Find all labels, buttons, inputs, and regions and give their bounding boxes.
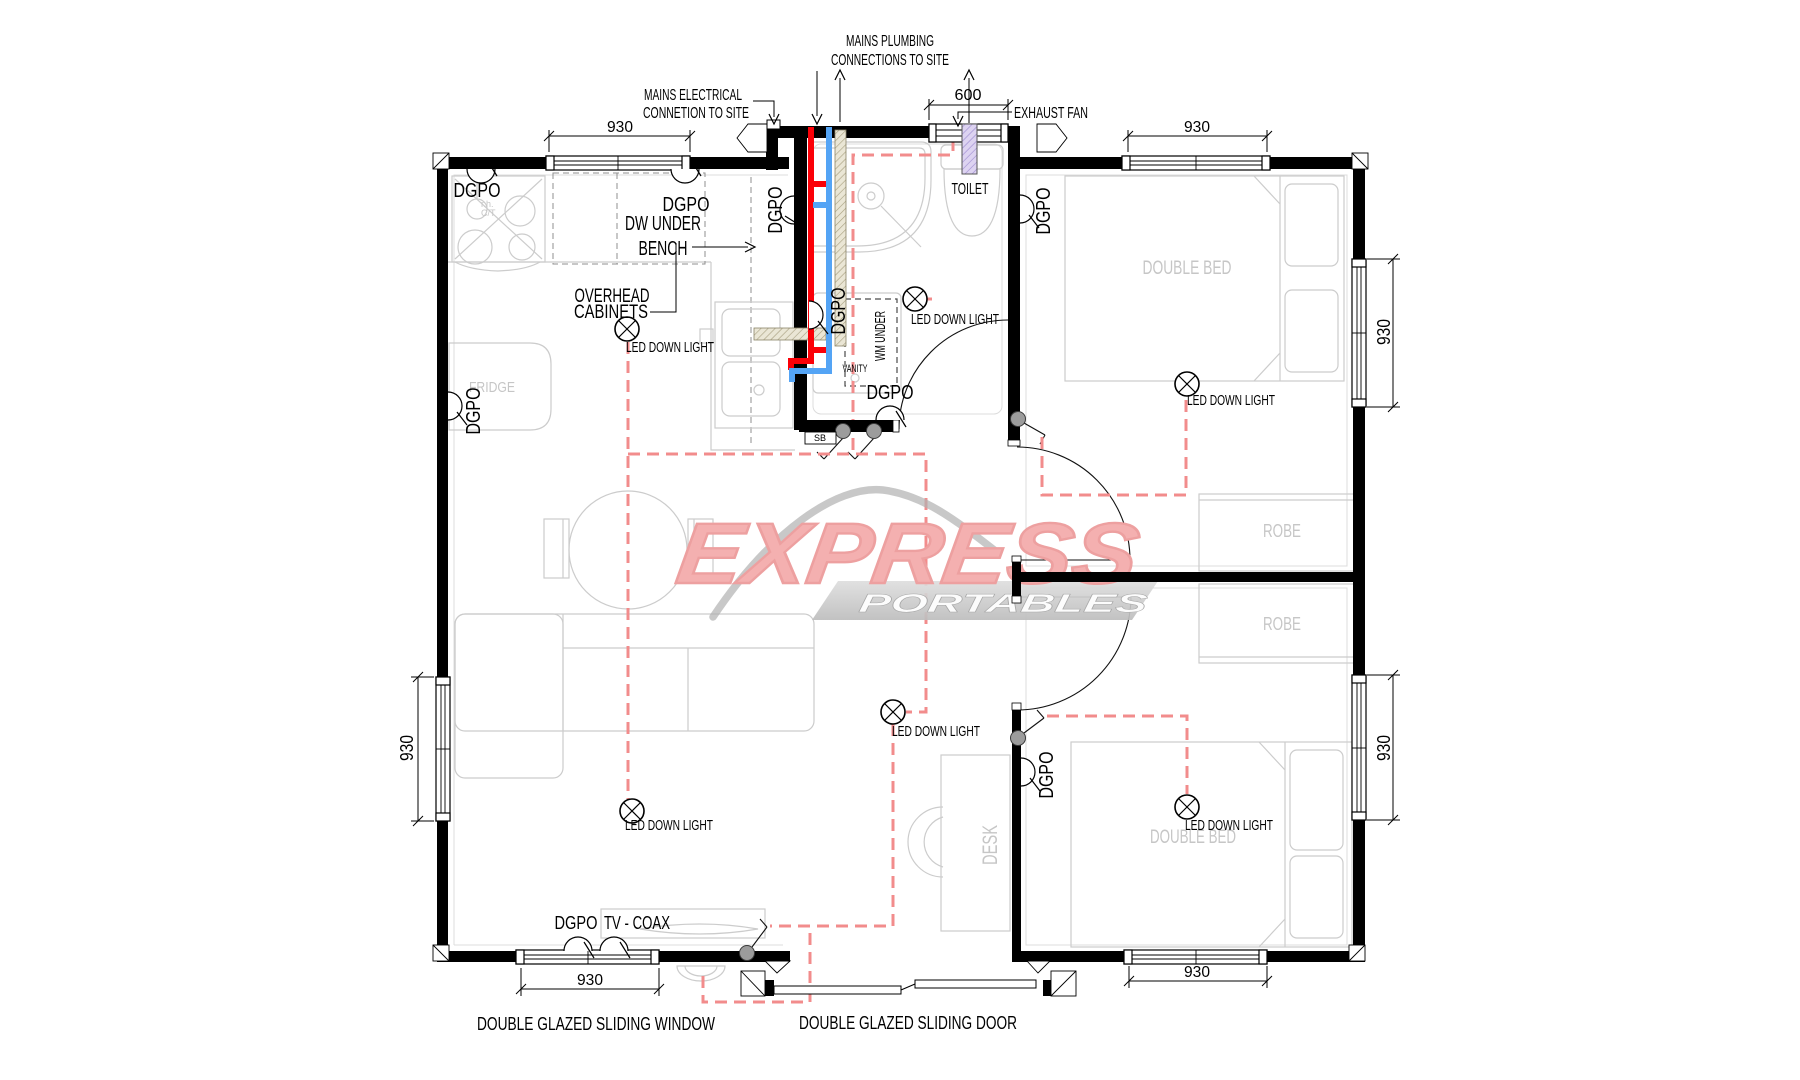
svg-text:TOILET: TOILET: [952, 181, 989, 198]
svg-text:DGPO: DGPO: [463, 388, 485, 435]
svg-text:930: 930: [577, 972, 603, 989]
svg-text:930: 930: [1374, 319, 1394, 345]
svg-text:930: 930: [1184, 119, 1210, 136]
svg-text:LED DOWN LIGHT: LED DOWN LIGHT: [892, 723, 980, 740]
svg-text:EXHAUST FAN: EXHAUST FAN: [1014, 105, 1088, 122]
svg-text:CABINETS: CABINETS: [574, 302, 648, 323]
svg-text:MAINS ELECTRICAL: MAINS ELECTRICAL: [644, 87, 742, 104]
svg-text:LED DOWN LIGHT: LED DOWN LIGHT: [1185, 817, 1273, 834]
svg-text:CONNECTIONS TO SITE: CONNECTIONS TO SITE: [831, 52, 949, 69]
svg-text:TV - COAX: TV - COAX: [604, 913, 670, 933]
svg-text:LED DOWN LIGHT: LED DOWN LIGHT: [911, 311, 999, 328]
svg-text:DOUBLE BED: DOUBLE BED: [1143, 258, 1232, 279]
svg-text:DGPO: DGPO: [867, 382, 914, 404]
svg-text:WM UNDER: WM UNDER: [872, 311, 889, 361]
svg-text:ROBE: ROBE: [1263, 521, 1301, 541]
svg-text:DW UNDER: DW UNDER: [625, 213, 701, 235]
svg-text:PORTABLES: PORTABLES: [857, 588, 1150, 618]
svg-text:DGPO: DGPO: [555, 913, 598, 933]
svg-text:DGPO: DGPO: [1033, 188, 1055, 235]
svg-text:C/T: C/T: [481, 208, 496, 218]
svg-text:MAINS PLUMBING: MAINS PLUMBING: [846, 33, 934, 50]
svg-text:DGPO: DGPO: [1036, 752, 1058, 799]
svg-text:LED DOWN LIGHT: LED DOWN LIGHT: [1187, 392, 1275, 409]
svg-text:VANITY: VANITY: [843, 363, 868, 375]
svg-text:DOUBLE GLAZED SLIDING DOOR: DOUBLE GLAZED SLIDING DOOR: [799, 1013, 1017, 1033]
svg-text:CONNETION TO SITE: CONNETION TO SITE: [643, 105, 749, 122]
svg-text:DGPO: DGPO: [828, 288, 850, 335]
svg-text:DGPO: DGPO: [765, 187, 787, 234]
svg-text:ROBE: ROBE: [1263, 614, 1301, 634]
svg-text:BENCH: BENCH: [639, 238, 688, 260]
svg-text:LED DOWN LIGHT: LED DOWN LIGHT: [625, 817, 713, 834]
svg-text:930: 930: [397, 735, 417, 761]
svg-text:SB: SB: [814, 433, 826, 443]
svg-text:DGPO: DGPO: [454, 180, 501, 202]
svg-text:930: 930: [607, 119, 633, 136]
svg-text:930: 930: [1374, 735, 1394, 761]
svg-text:LED DOWN LIGHT: LED DOWN LIGHT: [626, 339, 714, 356]
svg-text:930: 930: [1184, 964, 1210, 981]
svg-text:600: 600: [955, 87, 982, 104]
svg-text:DOUBLE GLAZED SLIDING WINDOW: DOUBLE GLAZED SLIDING WINDOW: [477, 1014, 715, 1034]
svg-text:DESK: DESK: [979, 825, 1002, 865]
